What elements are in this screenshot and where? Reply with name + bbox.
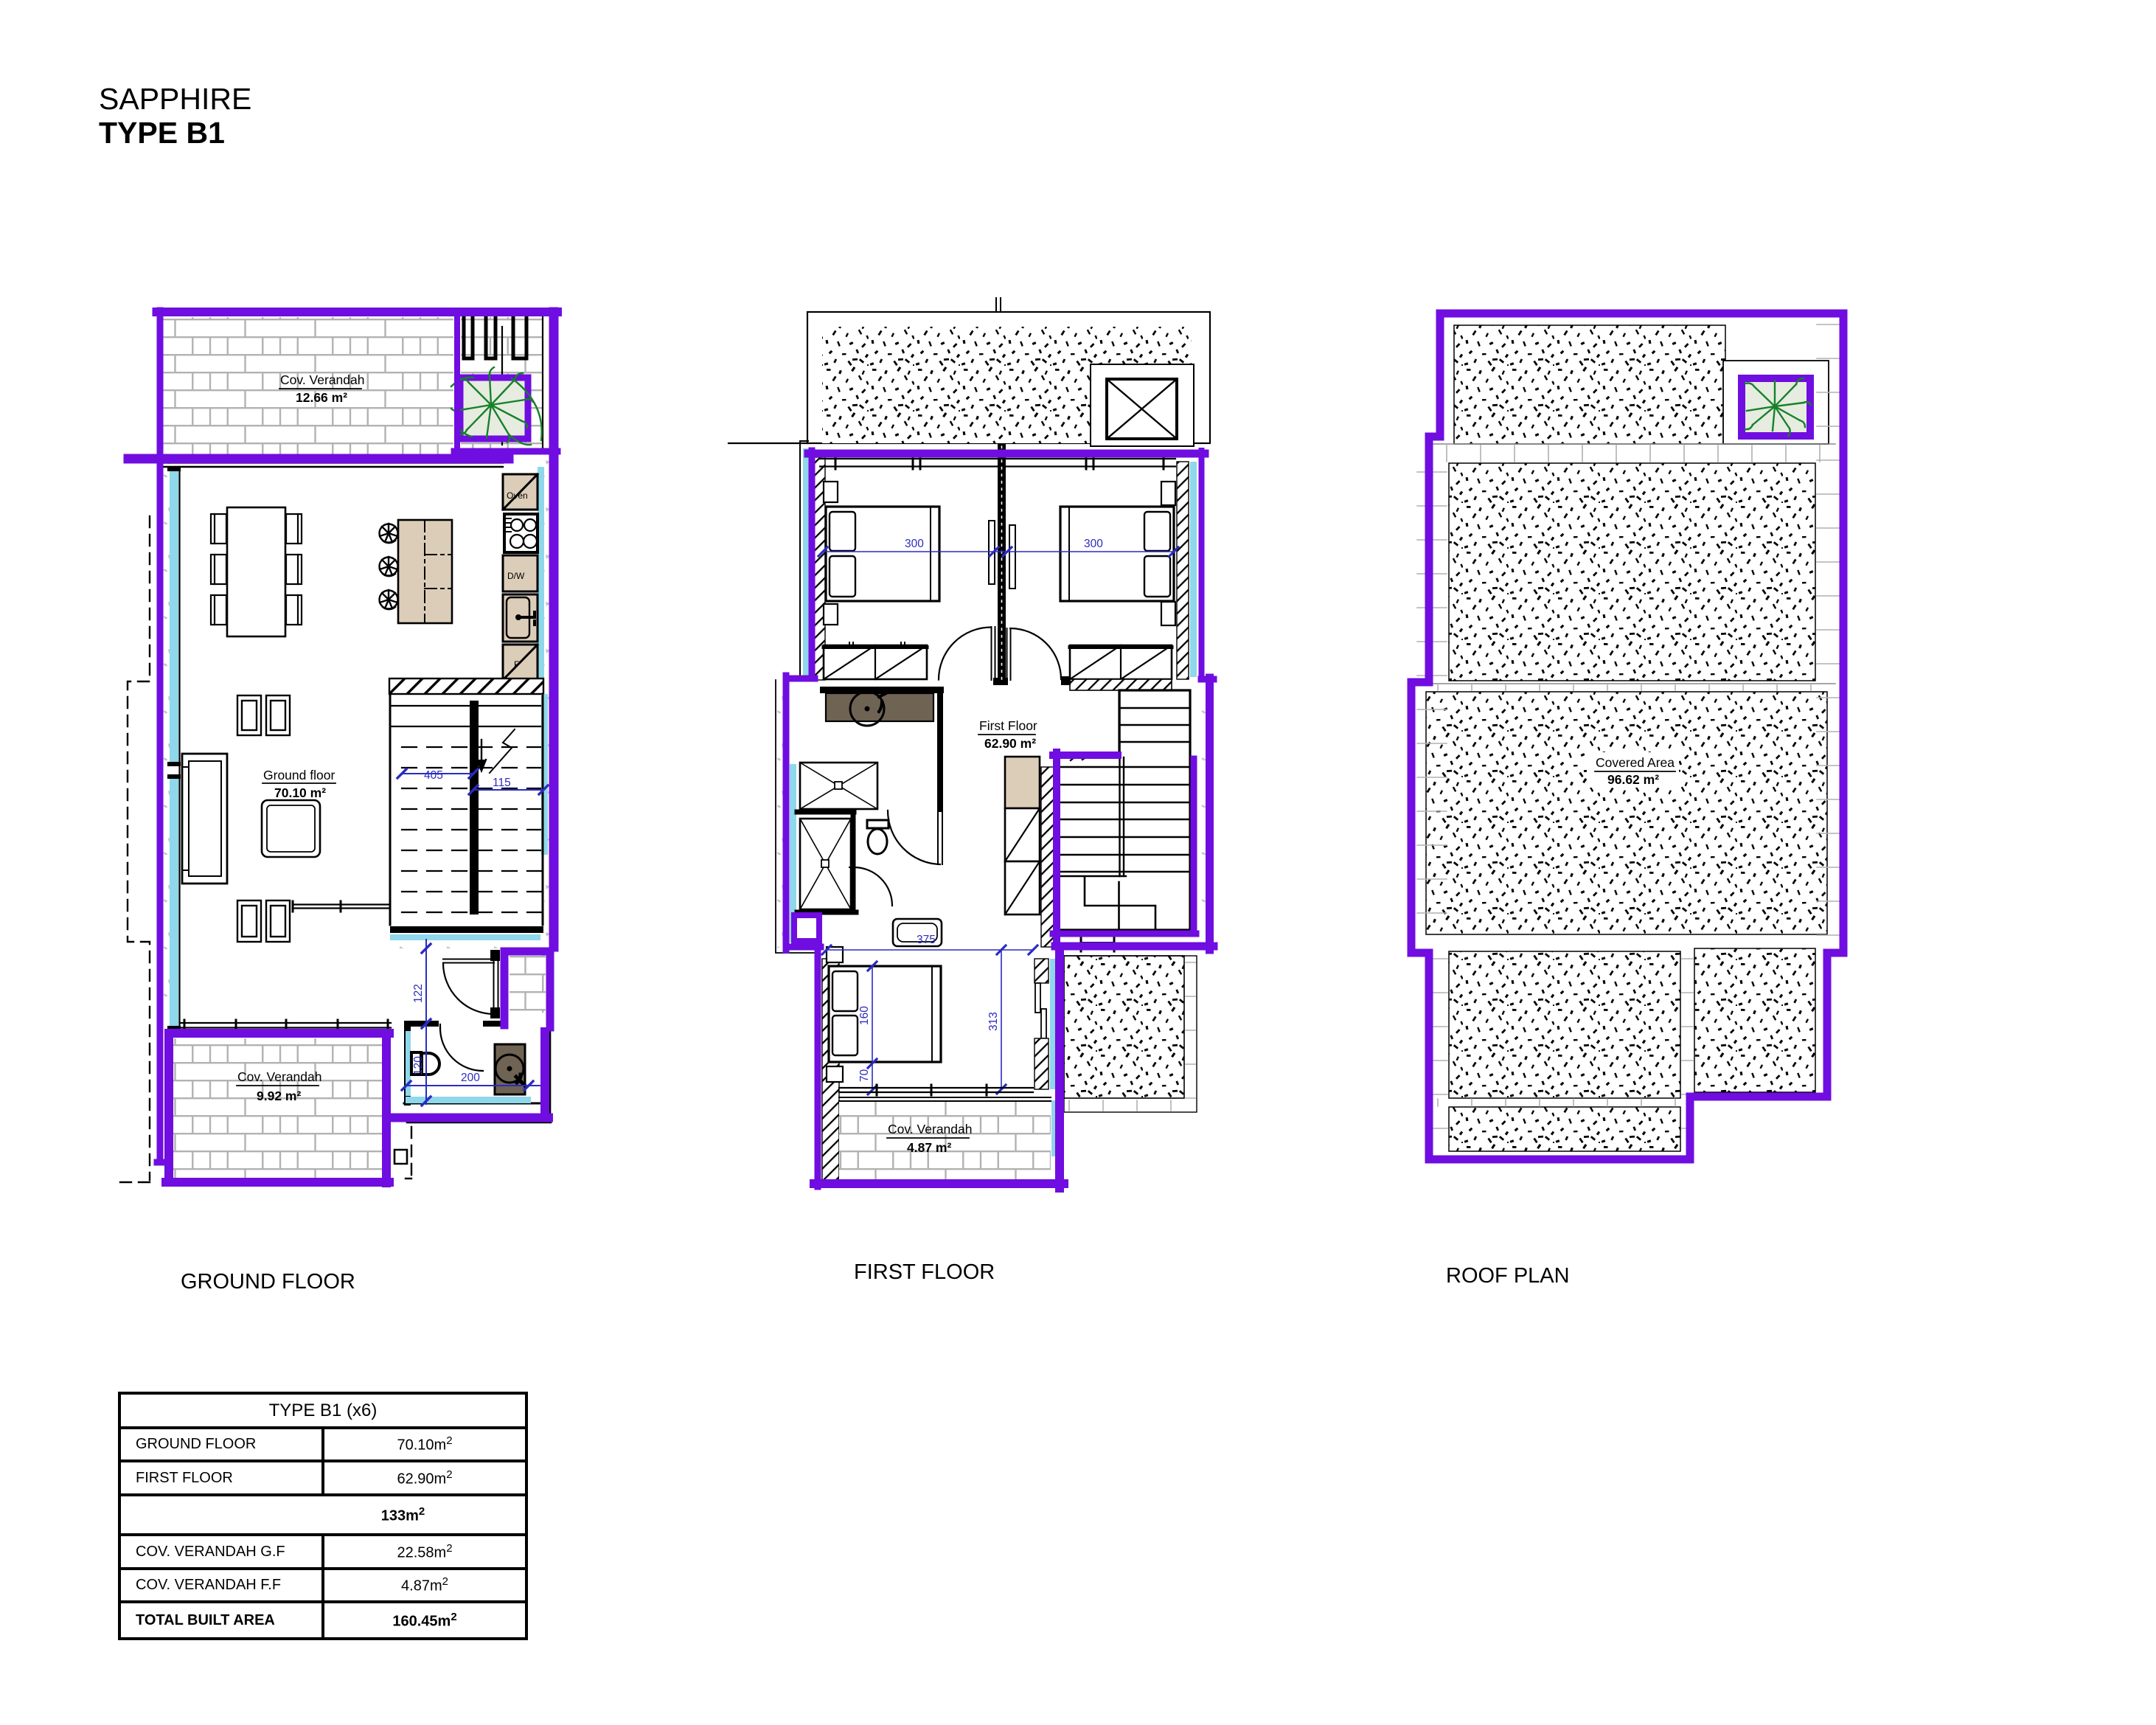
svg-text:200: 200 — [461, 1072, 480, 1084]
svg-text:First Floor: First Floor — [979, 718, 1037, 733]
svg-text:Ground floor: Ground floor — [263, 768, 335, 782]
svg-text:Cov. Verandah: Cov. Verandah — [888, 1122, 972, 1136]
svg-text:300: 300 — [905, 538, 924, 550]
svg-text:SAPPHIRE: SAPPHIRE — [99, 82, 251, 116]
svg-text:122: 122 — [412, 984, 425, 1003]
svg-text:FIRST FLOOR: FIRST FLOOR — [854, 1260, 995, 1284]
svg-text:70.10 m²: 70.10 m² — [274, 785, 326, 800]
svg-text:62.90 m²: 62.90 m² — [984, 736, 1036, 751]
svg-text:115: 115 — [493, 777, 511, 789]
svg-text:96.62 m²: 96.62 m² — [1607, 772, 1659, 787]
svg-text:375: 375 — [917, 934, 936, 946]
svg-text:405: 405 — [424, 769, 443, 782]
svg-text:GROUND FLOOR: GROUND FLOOR — [181, 1270, 355, 1294]
svg-text:Cov. Verandah: Cov. Verandah — [237, 1069, 321, 1084]
svg-text:9.92 m²: 9.92 m² — [257, 1089, 301, 1103]
svg-text:300: 300 — [1084, 538, 1103, 550]
svg-text:Oven: Oven — [507, 490, 528, 501]
svg-text:Cov. Verandah: Cov. Verandah — [280, 372, 364, 387]
svg-text:70: 70 — [858, 1069, 871, 1082]
svg-text:F: F — [514, 659, 519, 670]
svg-text:12.66 m²: 12.66 m² — [296, 390, 347, 405]
svg-text:Covered Area: Covered Area — [1596, 755, 1675, 770]
svg-text:160: 160 — [858, 1006, 871, 1025]
svg-text:4.87 m²: 4.87 m² — [907, 1140, 951, 1155]
svg-text:D/W: D/W — [507, 571, 525, 581]
svg-text:313: 313 — [987, 1012, 1000, 1031]
svg-text:TYPE B1: TYPE B1 — [99, 116, 225, 150]
svg-text:ROOF PLAN: ROOF PLAN — [1446, 1264, 1570, 1288]
svg-text:120: 120 — [412, 1056, 425, 1075]
